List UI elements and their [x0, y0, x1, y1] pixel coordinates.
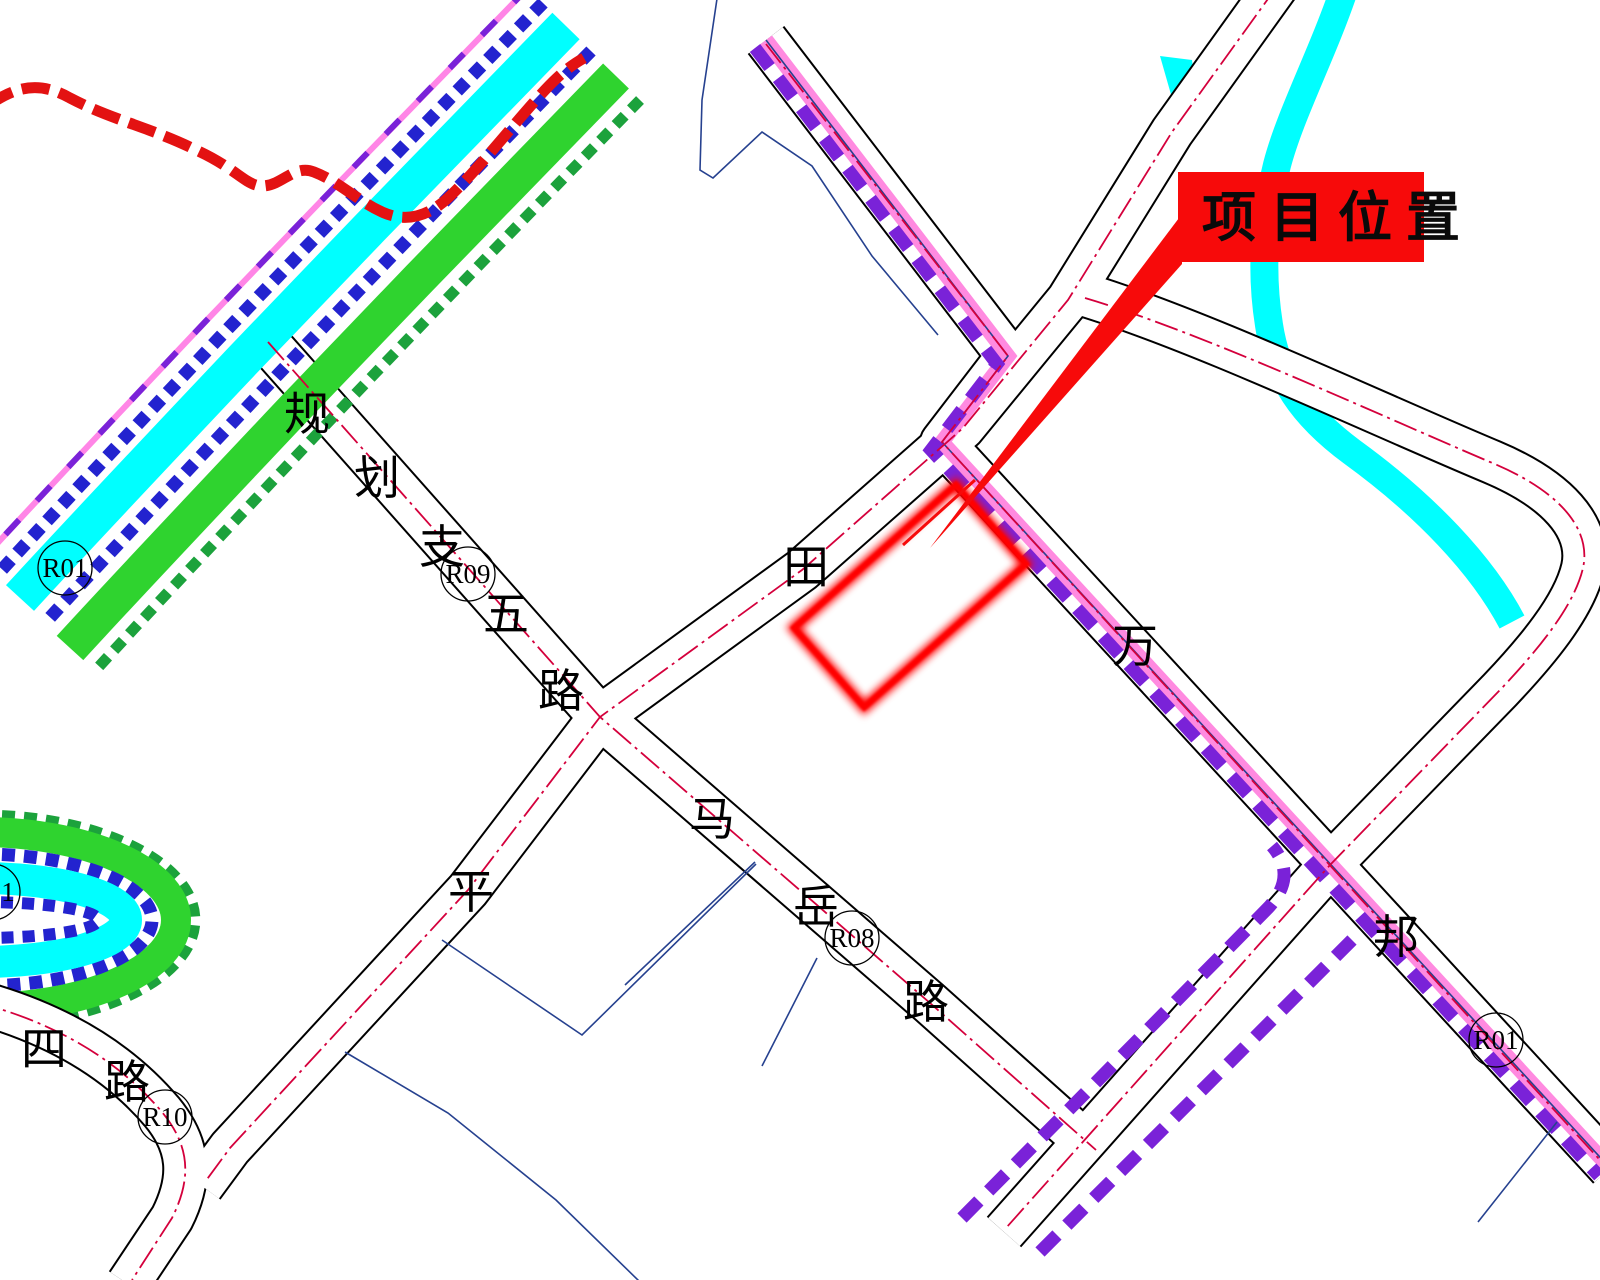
label-ma: 马 [689, 794, 735, 845]
map-canvas: R01 R09 R08 R10 R01 1 规 划 支 五 路 田 平 马 岳 … [0, 0, 1600, 1280]
label-tian: 田 [783, 542, 829, 593]
road-east-casing [1004, 294, 1584, 1232]
greenbelt-pink-edge [0, 0, 528, 560]
code-partial: 1 [1, 877, 15, 907]
label-guihua-3: 支 [419, 522, 465, 573]
label-wan: 万 [1112, 621, 1158, 672]
planning-map: R01 R09 R08 R10 R01 1 规 划 支 五 路 田 平 马 岳 … [0, 0, 1600, 1280]
greenbelt-corridor [0, 0, 640, 672]
label-bang: 邦 [1373, 912, 1419, 963]
label-guihua-1: 规 [284, 389, 330, 440]
label-si: 四 [21, 1024, 67, 1075]
callout-label: 项目位置 [1202, 188, 1474, 248]
label-guihua-5: 路 [538, 666, 584, 717]
label-ping: 平 [448, 867, 494, 918]
greenbelt-bulb [0, 815, 195, 1025]
label-yue: 岳 [793, 882, 839, 933]
label-guihua-4: 五 [483, 589, 529, 640]
greenbelt-purple-edge [0, 0, 528, 560]
river-channel [1264, 0, 1512, 622]
code-r01-west: R01 [42, 553, 87, 583]
label-mayue-lu: 路 [903, 977, 949, 1028]
label-guihua-2: 划 [354, 453, 400, 504]
code-r01-east: R01 [1473, 1025, 1518, 1055]
label-silu-lu: 路 [104, 1057, 150, 1108]
